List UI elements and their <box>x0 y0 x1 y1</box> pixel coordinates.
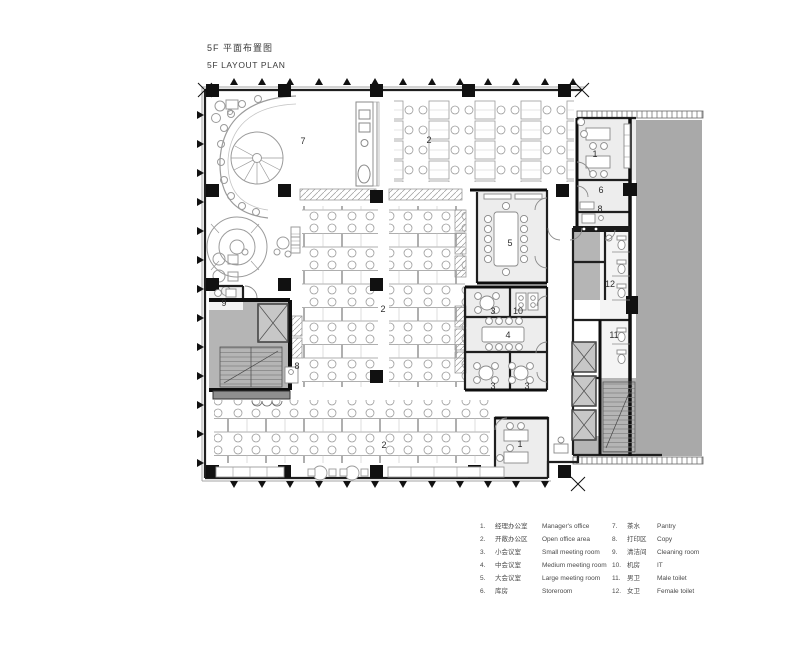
room-label-small-meeting-lr: 3 <box>524 381 529 391</box>
room-label-storeroom: 6 <box>598 185 603 195</box>
room-label-copy-left: 8 <box>294 361 299 371</box>
legend-item-9: 9.清洁间Cleaning room <box>612 546 699 559</box>
legend-item-10: 10.机房IT <box>612 559 699 572</box>
legend-item-8: 8.打印区Copy <box>612 533 699 546</box>
room-label-it-room: 10 <box>513 306 523 316</box>
floor-plan-page: { "title": { "zh": "5F 平面布置图", "en": "5F… <box>0 0 800 646</box>
room-label-open-office-top: 2 <box>426 135 431 145</box>
room-label-small-meeting-ll: 3 <box>490 381 495 391</box>
legend-item-11: 11.男卫Male toilet <box>612 572 699 585</box>
legend-item-12: 12.女卫Female toilet <box>612 585 699 598</box>
legend-column-1: 1.经理办公室Manager's office 2.开敞办公区Open offi… <box>480 520 607 598</box>
room-label-copy-right: 8 <box>597 204 602 214</box>
room-label-open-office-mid: 2 <box>380 304 385 314</box>
legend-item-7: 7.茶水Pantry <box>612 520 699 533</box>
legend-item-4: 4.中会议室Medium meeting room <box>480 559 607 572</box>
room-label-pantry: 7 <box>300 136 305 146</box>
room-label-male-toilet: 11 <box>609 330 618 340</box>
room-label-medium-meeting: 4 <box>505 330 510 340</box>
room-label-large-meeting: 5 <box>507 238 512 248</box>
legend-item-3: 3.小会议室Small meeting room <box>480 546 607 559</box>
room-label-open-office-bottom: 2 <box>381 440 386 450</box>
legend-column-2: 7.茶水Pantry 8.打印区Copy 9.清洁间Cleaning room … <box>612 520 699 598</box>
room-label-managers-top: 1 <box>592 149 597 159</box>
room-label-managers-bottom: 1 <box>517 439 522 449</box>
room-label-small-meeting-upper: 3 <box>490 306 495 316</box>
legend-item-5: 5.大会议室Large meeting room <box>480 572 607 585</box>
legend-item-1: 1.经理办公室Manager's office <box>480 520 607 533</box>
room-label-cleaning: 9 <box>221 298 226 308</box>
room-label-female-toilet: 12 <box>605 279 615 289</box>
legend-item-2: 2.开敞办公区Open office area <box>480 533 607 546</box>
pantry-counter <box>356 102 379 186</box>
legend-item-6: 6.库房Storeroom <box>480 585 607 598</box>
